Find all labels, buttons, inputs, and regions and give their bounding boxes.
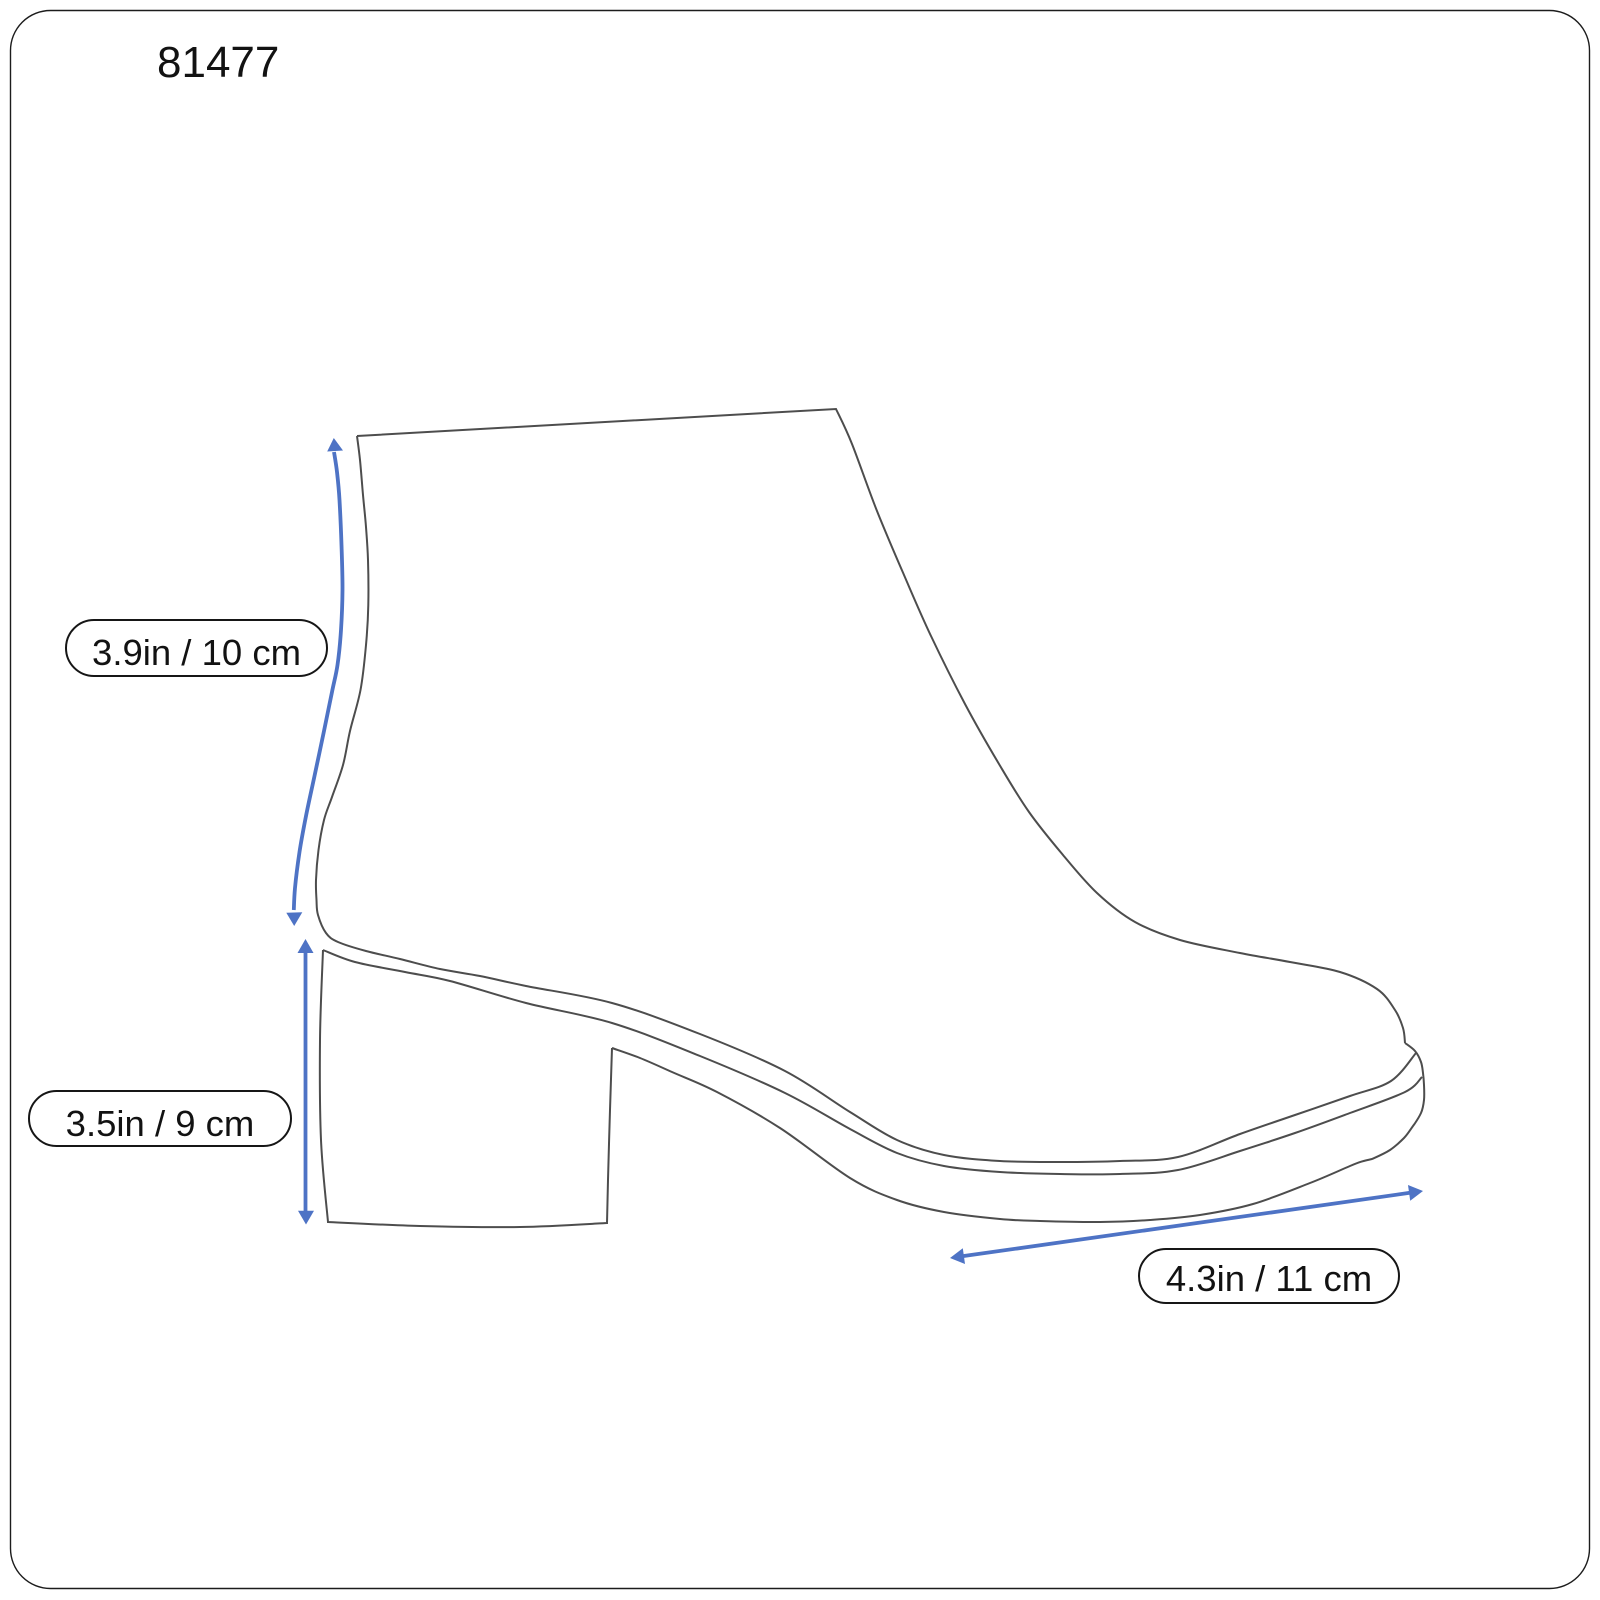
svg-text:4.3in / 11 cm: 4.3in / 11 cm [1166,1258,1372,1299]
svg-text:81477: 81477 [157,38,279,87]
svg-text:3.9in / 10 cm: 3.9in / 10 cm [92,632,301,673]
svg-text:3.5in / 9 cm: 3.5in / 9 cm [66,1103,255,1144]
